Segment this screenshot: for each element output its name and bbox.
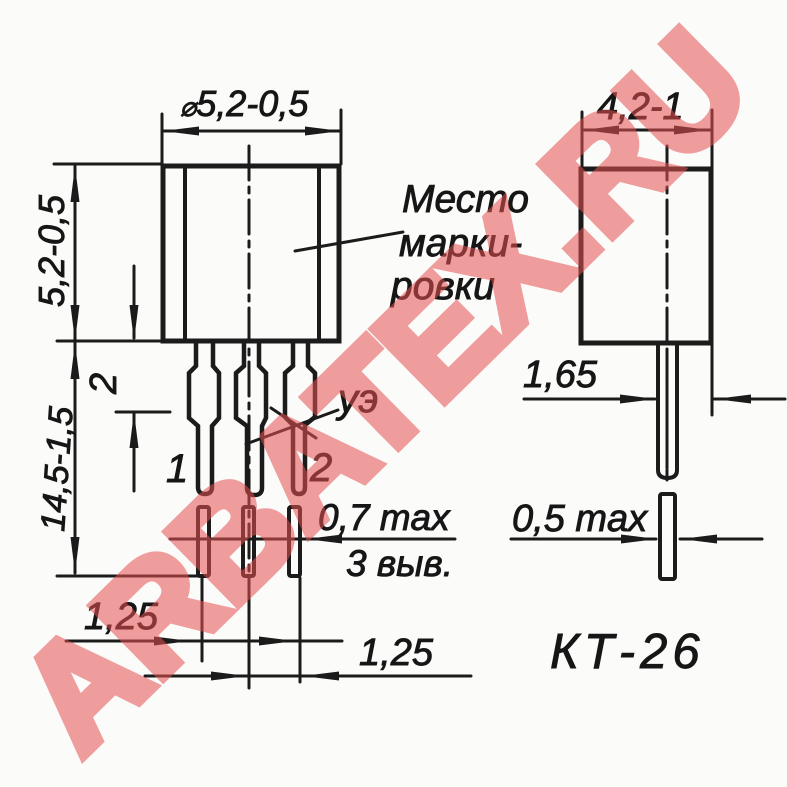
svg-text:КТ-26: КТ-26 <box>550 625 705 679</box>
svg-text:1,25: 1,25 <box>359 632 434 674</box>
svg-text:2: 2 <box>83 373 125 395</box>
svg-text:1,65: 1,65 <box>523 354 598 396</box>
svg-text:0,5 max: 0,5 max <box>512 498 649 540</box>
svg-text:3 выв.: 3 выв. <box>346 543 453 584</box>
svg-text:⌀5,2-0,5: ⌀5,2-0,5 <box>180 83 309 124</box>
svg-text:5,2-0,5: 5,2-0,5 <box>31 194 72 307</box>
